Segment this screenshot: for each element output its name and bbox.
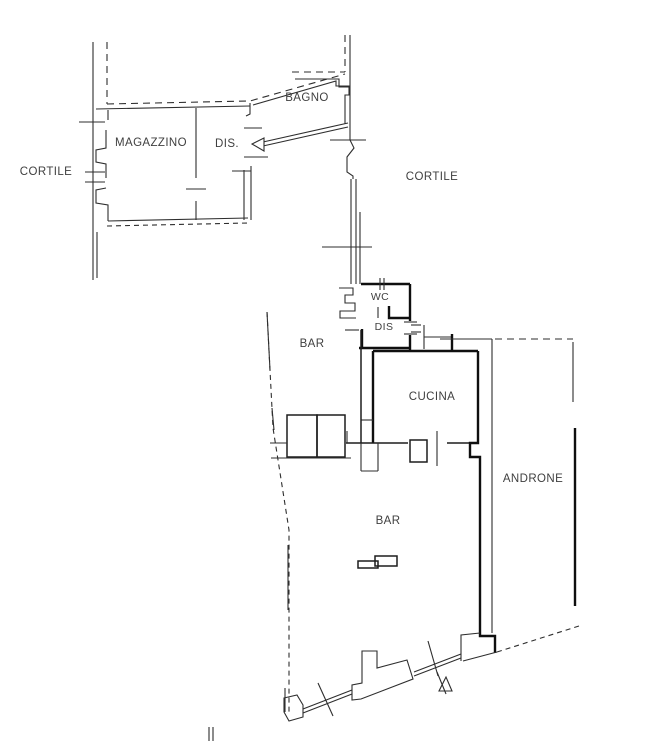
room-label-androne: ANDRONE (503, 473, 563, 485)
androne-walls (463, 339, 579, 661)
room-label-bagno: BAGNO (285, 92, 329, 104)
lower-bar-left-boundary (267, 312, 289, 712)
interior-partitions (186, 108, 268, 220)
pillar-block (270, 415, 351, 458)
room-label-wc: WC (371, 291, 389, 303)
stair-direction-arrow (252, 123, 348, 151)
room-label-dis-top: DIS. (215, 138, 239, 150)
bar-counter (358, 556, 397, 568)
bottom-survey-marks (209, 727, 213, 741)
window-tick-marks (428, 641, 438, 676)
room-label-dis-mid: DIS (375, 321, 394, 333)
window-tick-marks (318, 683, 333, 716)
wc-dis-block (339, 278, 417, 350)
shopfront-wall (284, 633, 480, 721)
floor-plan-page: CORTILE MAGAZZINO DIS. BAGNO CORTILE WC … (0, 0, 672, 741)
room-label-cucina: CUCINA (409, 391, 456, 403)
room-label-magazzino: MAGAZZINO (115, 137, 187, 149)
bar-dividing-wall (346, 431, 470, 471)
entrance-triangle-symbol (437, 672, 452, 694)
dis-exit-passage (411, 325, 492, 361)
room-label-bar-upper: BAR (300, 338, 325, 350)
right-courtyard-wall (292, 35, 372, 284)
floor-plan-drawing (0, 0, 672, 741)
room-label-bar-lower: BAR (376, 515, 401, 527)
left-boundary-walls (79, 42, 108, 280)
room-label-cortile-left: CORTILE (20, 166, 72, 178)
room-label-cortile-right: CORTILE (406, 171, 458, 183)
